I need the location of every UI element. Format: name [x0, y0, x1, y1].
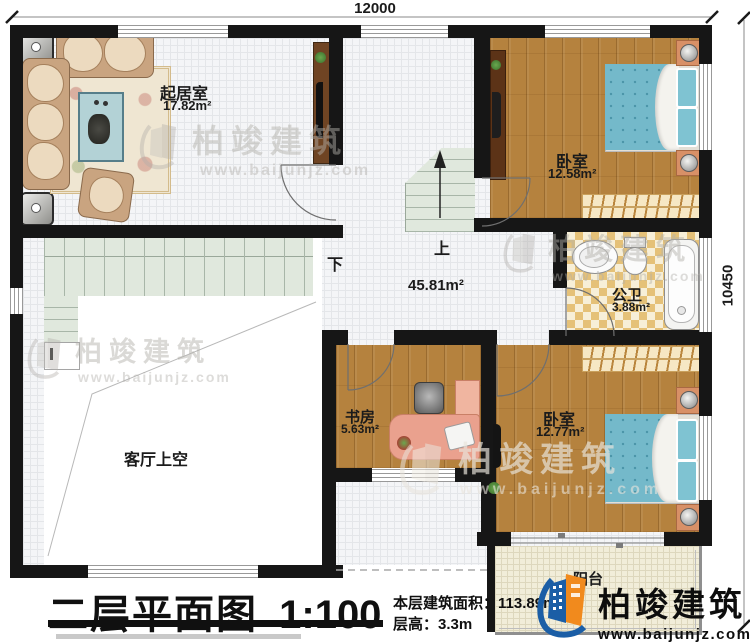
window-bottom-void	[88, 565, 258, 578]
wall-mid-horizontal-3	[549, 330, 712, 345]
sofa-left-cushion-1	[27, 64, 64, 102]
wall-bathroom-left	[553, 232, 567, 288]
coffee-table-cup-1	[94, 100, 99, 105]
bed1-pillow-1	[676, 68, 698, 108]
bed2-pillow-2	[676, 460, 698, 502]
window-right-bathroom	[699, 238, 712, 332]
window-right-bedroom2	[699, 416, 712, 500]
plant-bedroom2	[488, 482, 500, 494]
desk-plant-bedroom1	[491, 60, 501, 70]
label-bedroom1-area: 12.58m²	[548, 166, 596, 181]
nightstand-1b-lamp	[680, 154, 698, 172]
wall-study-bottom-left	[333, 468, 372, 482]
corner-table-top-lamp	[31, 42, 41, 52]
bed2-pillow-1	[676, 419, 698, 461]
stairs-down-mark	[50, 348, 53, 360]
sofa-top-cushion-2	[104, 33, 146, 72]
label-bedroom2-area: 12.77m²	[536, 424, 584, 439]
study-chair	[414, 382, 444, 414]
label-study-area: 5.63m²	[341, 422, 379, 436]
wardrobe-bedroom1	[582, 194, 701, 220]
nightstand-2a-lamp	[680, 391, 698, 409]
bathtub-drain	[677, 306, 686, 315]
bed1-pillow-2	[676, 107, 698, 147]
window-right-bedroom1	[699, 64, 712, 150]
info-height-line: 层高：3.3m	[393, 613, 472, 634]
title-underline	[48, 620, 383, 627]
window-top-living	[118, 25, 228, 38]
bed2-blanket	[652, 414, 678, 502]
info-height-value: 3.3m	[438, 616, 472, 633]
label-living-area: 17.82m²	[163, 98, 211, 113]
wall-bedroom2-bottom-right	[664, 532, 712, 546]
sink-basin	[579, 246, 609, 268]
wall-living-right	[329, 38, 343, 165]
stairs-down	[44, 238, 313, 296]
tv-cabinet-plant	[315, 52, 326, 63]
wall-mid-horizontal-2	[394, 330, 497, 345]
study-plant	[397, 436, 411, 450]
window-top-hall	[361, 25, 448, 38]
label-stairs-down: 下	[327, 251, 343, 275]
wall-balcony-left	[487, 546, 495, 632]
sofa-left-cushion-3	[27, 142, 64, 180]
label-stairs-up: 上	[434, 235, 450, 259]
corner-table-bottom-lamp	[31, 203, 41, 213]
toilet-bowl	[623, 247, 647, 275]
study-side-cabinet	[455, 380, 480, 416]
label-bathroom-area: 3.88m²	[612, 300, 650, 314]
wall-bedroom2-bottom-left	[477, 532, 511, 546]
window-left	[10, 288, 23, 314]
coffee-table-centerpiece	[88, 114, 110, 144]
coffee-table-cup-2	[103, 101, 108, 106]
wall-bedroom1-left	[474, 38, 490, 178]
window-study-bottom	[372, 468, 455, 482]
plan-title-text: 二层平面图	[48, 593, 258, 637]
label-void: 客厅上空	[124, 446, 188, 470]
tv-bedroom2	[493, 424, 501, 468]
brand-logo: 柏竣建筑 www.baijunjz.com	[536, 566, 689, 643]
info-height-label: 层高：	[393, 616, 438, 633]
floor-plan: 柏竣建筑 www.baijunjz.com 柏竣建筑 www.baijunjz.…	[0, 0, 750, 643]
wall-mid-horizontal-1	[322, 330, 348, 345]
dim-right-label: 10450	[720, 254, 737, 318]
window-top-bedroom1	[545, 25, 650, 38]
info-area-label: 本层建筑面积：	[393, 595, 498, 612]
nightstand-1a-lamp	[680, 44, 698, 62]
brand-logo-icon	[536, 566, 592, 638]
tv	[316, 82, 323, 138]
plan-scale: 1:100	[279, 593, 381, 637]
wall-void-right	[322, 345, 336, 578]
title-underline-shadow	[56, 634, 301, 639]
wall-bedroom1-bottom	[474, 218, 712, 232]
plan-title: 二层平面图 1:100	[48, 582, 381, 640]
wall-study-bottom-right	[455, 468, 481, 482]
nightstand-2b-lamp	[680, 508, 698, 526]
dim-top-label: 12000	[340, 0, 410, 17]
wardrobe-bedroom2	[582, 346, 701, 372]
label-hall-area: 45.81m²	[408, 277, 464, 294]
monitor-bedroom1	[492, 92, 501, 138]
sofa-left-cushion-2	[27, 103, 64, 141]
wall-living-bottom	[10, 225, 343, 238]
